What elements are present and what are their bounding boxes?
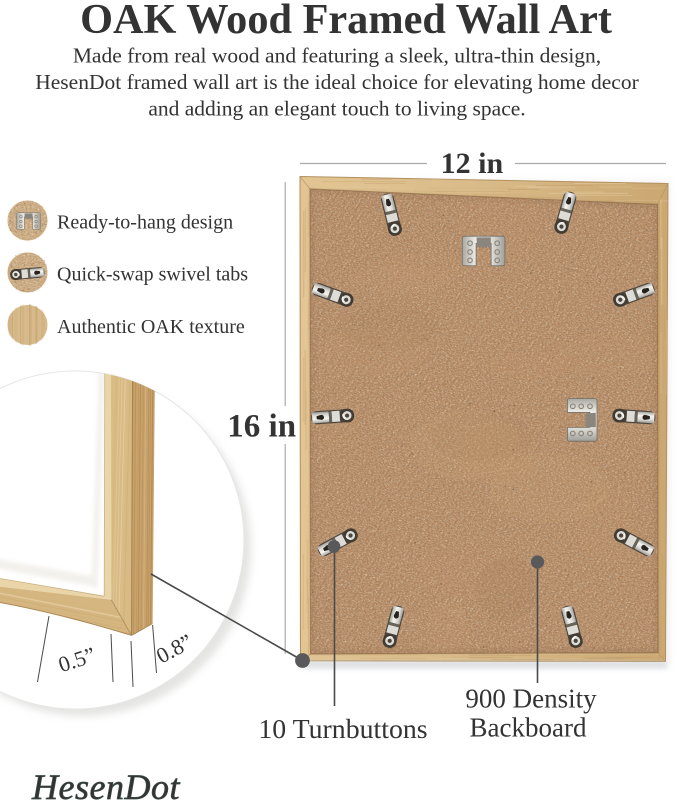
svg-text:and adding an elegant touch to: and adding an elegant touch to living sp… <box>148 97 525 121</box>
svg-text:16 in: 16 in <box>227 409 296 445</box>
svg-text:10 Turnbuttons: 10 Turnbuttons <box>258 714 427 745</box>
svg-text:Authentic OAK texture: Authentic OAK texture <box>57 316 245 338</box>
svg-text:HesenDot: HesenDot <box>31 767 180 805</box>
svg-text:Backboard: Backboard <box>470 713 587 743</box>
svg-text:12 in: 12 in <box>441 147 504 180</box>
svg-text:Made from real wood and featur: Made from real wood and featuring a slee… <box>73 44 601 68</box>
svg-text:OAK Wood Framed Wall Art: OAK Wood Framed Wall Art <box>80 0 612 43</box>
svg-text:Ready-to-hang design: Ready-to-hang design <box>57 212 233 234</box>
svg-text:Quick-swap swivel tabs: Quick-swap swivel tabs <box>57 264 248 286</box>
svg-text:HesenDot framed wall art is th: HesenDot framed wall art is the ideal ch… <box>35 70 639 94</box>
svg-text:900 Density: 900 Density <box>465 684 597 714</box>
